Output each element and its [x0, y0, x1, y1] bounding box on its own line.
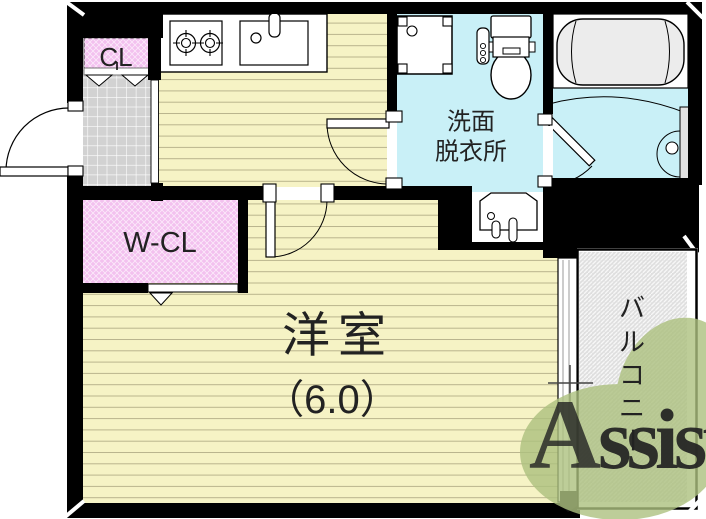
- washroom-label-line2: 脱衣所: [435, 139, 507, 166]
- watermark-text: ssist: [598, 391, 706, 487]
- walk-in-closet-label: W-CL: [123, 227, 197, 259]
- door-frame: [538, 176, 552, 187]
- main-room-label: 洋室: [282, 310, 394, 363]
- door-frame: [68, 166, 83, 176]
- stove-icon: [170, 21, 223, 65]
- entrance-door: [0, 101, 83, 176]
- door-frame: [538, 114, 552, 125]
- kitchen-sink-icon: [240, 13, 308, 65]
- door-frame: [321, 184, 334, 202]
- balcony-label: バ ル コ ニ ー: [617, 293, 647, 453]
- balcony-label-char: ル: [619, 327, 645, 357]
- balcony-label-char: ー: [617, 427, 647, 453]
- door-frame: [386, 111, 402, 122]
- balcony-label-char: コ: [619, 360, 645, 390]
- washroom-label-line1: 洗面: [447, 109, 495, 136]
- bathtub-icon: [553, 14, 688, 88]
- door-frame: [386, 178, 402, 189]
- entrance-step-edge: [151, 80, 159, 183]
- watermark-initial: A: [529, 379, 601, 490]
- floor-plan: A ssist CL W-CL 洗面 脱衣所 洋室 （6.0） バ ル コ ニ …: [0, 0, 706, 519]
- main-room-size-label: （6.0）: [264, 378, 400, 422]
- door-frame: [263, 184, 276, 202]
- door-frame: [68, 101, 83, 111]
- balcony-label-char: ニ: [619, 393, 645, 423]
- faucet-icon: [269, 13, 280, 37]
- washing-machine-pan-icon: [397, 16, 452, 74]
- balcony-label-char: バ: [619, 293, 645, 323]
- entrance-tile-floor: [83, 70, 151, 186]
- closet-label: CL: [99, 42, 132, 72]
